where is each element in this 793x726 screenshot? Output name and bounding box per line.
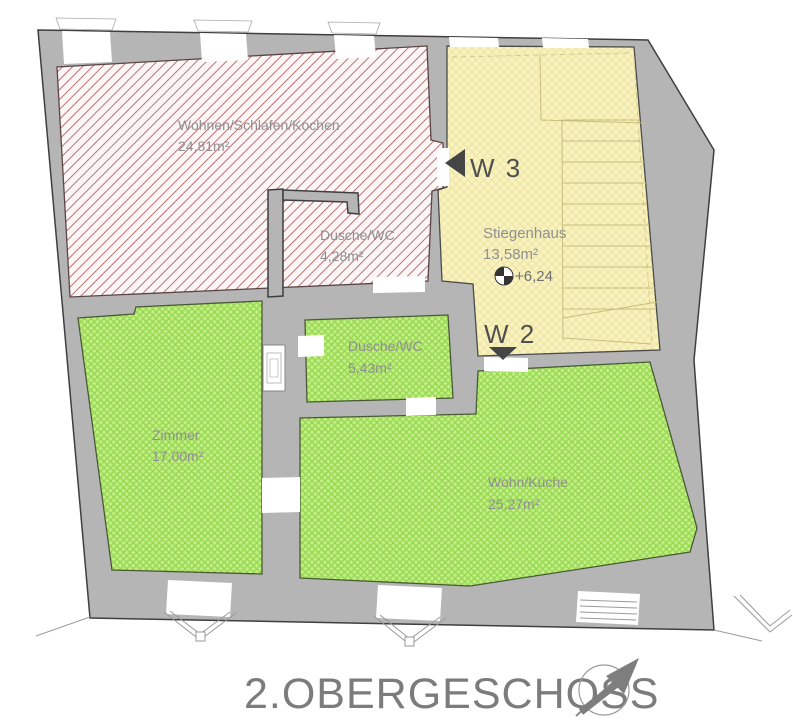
room-label-zimmer-name: Zimmer — [152, 427, 200, 443]
inner-wall-dusche-left — [268, 189, 283, 297]
unit-label-w3: W 3 — [470, 153, 522, 183]
room-label-stiegenhaus-name: Stiegenhaus — [483, 225, 566, 242]
level-label: +6,24 — [515, 268, 553, 285]
shaft — [263, 345, 285, 391]
page-title: 2.OBERGESCHOSS — [244, 670, 659, 718]
window-opening — [62, 31, 112, 64]
room-dusche-wc-w2 — [305, 315, 453, 402]
room-label-stiegenhaus-area: 13,58m² — [483, 246, 538, 263]
room-label-dusche-w2-name: Dusche/WC — [348, 338, 423, 354]
floor-plan-page: Wohnen/Schlafen/Kochen 24,81m² Dusche/WC… — [0, 0, 793, 726]
room-label-dusche-w3-area: 4,28m² — [320, 248, 364, 264]
room-label-wohnkueche-name: Wohn/Küche — [488, 474, 568, 490]
room-label-dusche-w3-name: Dusche/WC — [320, 227, 395, 243]
window-opening — [166, 580, 232, 617]
unit-label-w2: W 2 — [484, 319, 536, 349]
room-wohnen-schlafen-kochen — [57, 46, 443, 297]
window-opening — [449, 37, 499, 47]
room-label-wohnen-area: 24,81m² — [178, 138, 230, 154]
room-label-wohnkueche-area: 25,27m² — [488, 496, 540, 512]
door-opening — [406, 397, 436, 416]
door-opening — [262, 477, 300, 513]
door-opening — [298, 335, 324, 357]
window-opening — [334, 35, 376, 59]
room-label-zimmer-area: 17,00m² — [152, 448, 204, 464]
door-opening-w2 — [484, 357, 528, 372]
window-opening — [200, 33, 248, 62]
window-opening — [376, 585, 442, 621]
room-label-wohnen-name: Wohnen/Schlafen/Kochen — [178, 117, 340, 133]
window-opening — [542, 38, 589, 48]
door-opening — [373, 276, 425, 293]
room-label-dusche-w2-area: 5,43m² — [348, 360, 392, 376]
floor-plan: Wohnen/Schlafen/Kochen 24,81m² Dusche/WC… — [0, 0, 793, 726]
door-opening-w3 — [437, 148, 449, 186]
level-marker-icon — [495, 267, 513, 285]
